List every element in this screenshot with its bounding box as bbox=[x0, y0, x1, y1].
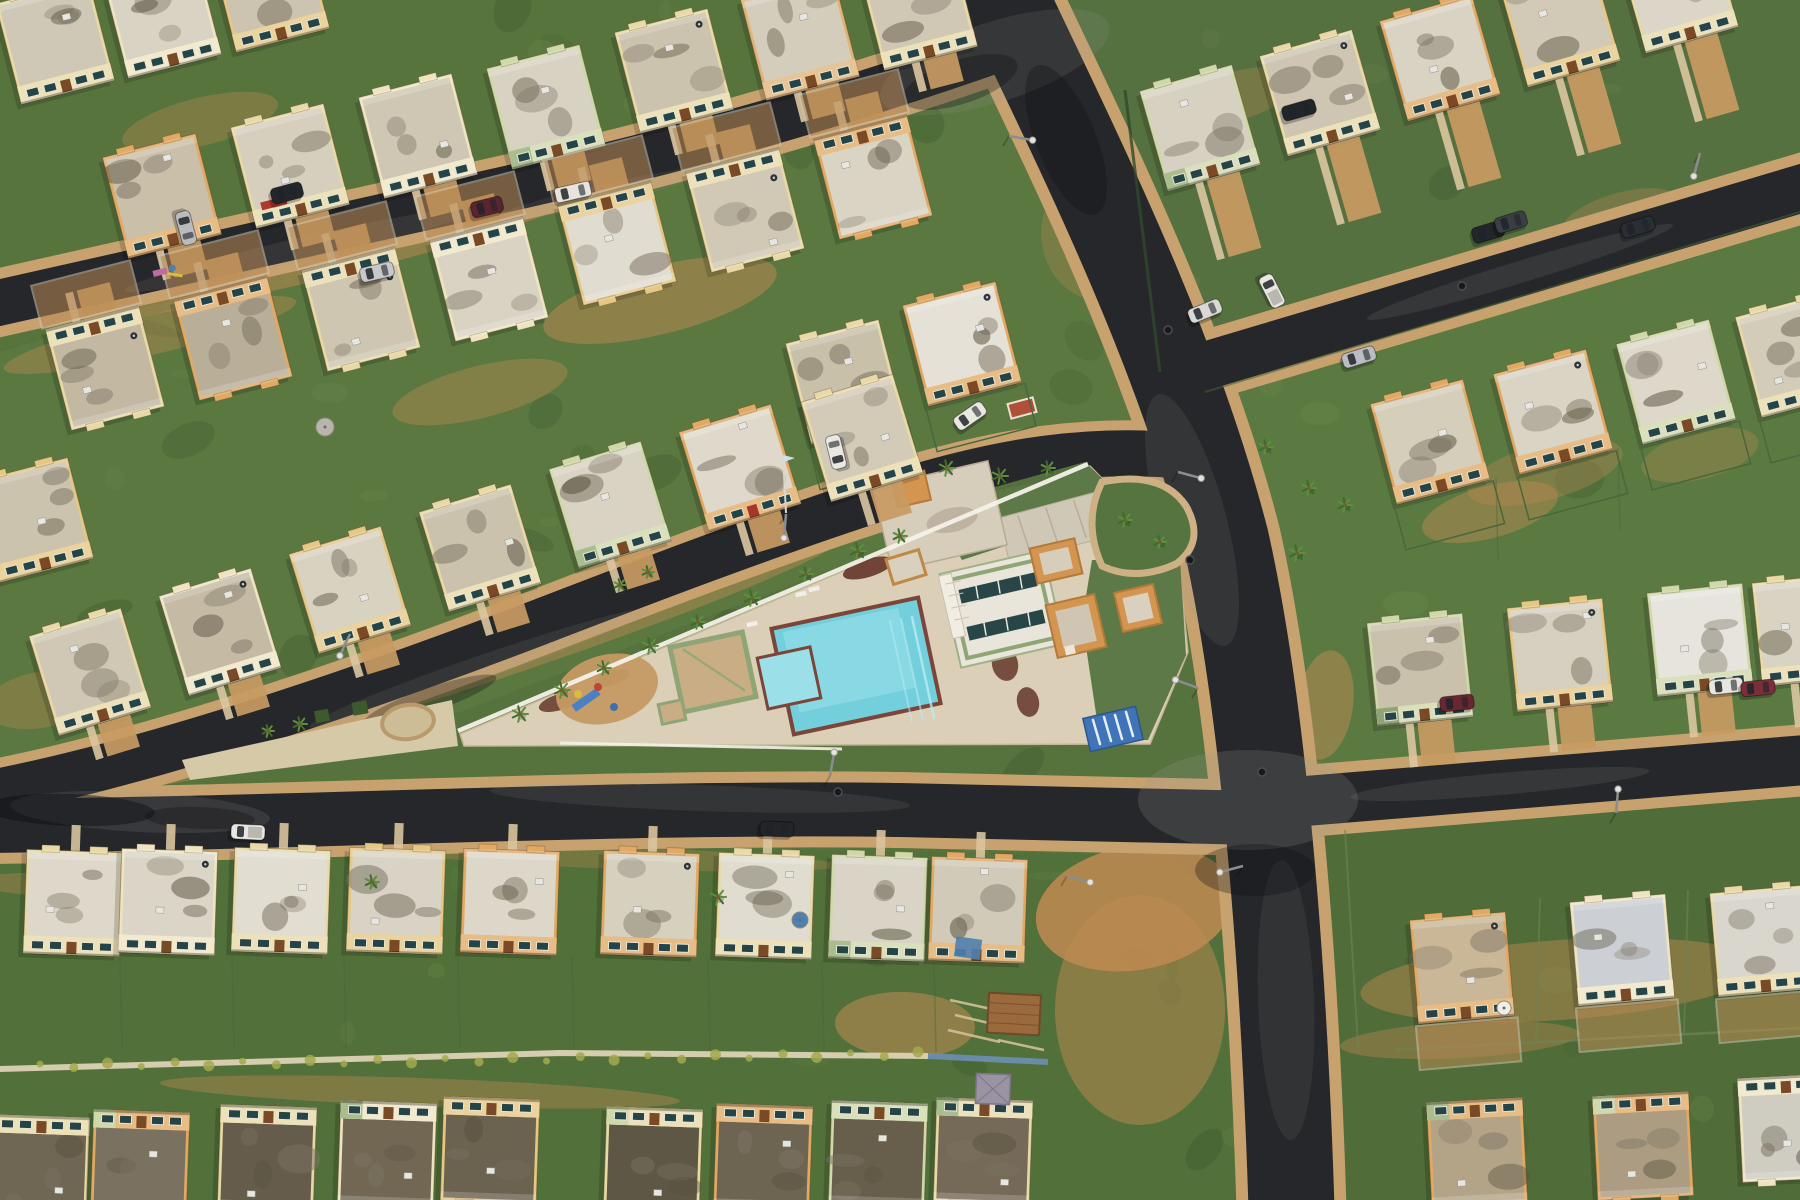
dirt-patch bbox=[1055, 895, 1225, 1125]
window bbox=[486, 940, 498, 948]
window bbox=[501, 1103, 513, 1111]
window bbox=[614, 1112, 626, 1120]
window bbox=[1453, 1106, 1465, 1115]
walkway bbox=[648, 826, 658, 852]
door bbox=[759, 1110, 769, 1122]
window bbox=[742, 1109, 754, 1117]
hedge-shrub bbox=[102, 1058, 113, 1069]
door bbox=[383, 1107, 393, 1119]
door bbox=[1636, 1099, 1647, 1112]
window bbox=[741, 944, 753, 952]
hedge-shrub bbox=[913, 1047, 924, 1058]
window bbox=[126, 940, 138, 948]
window bbox=[49, 941, 61, 949]
window bbox=[1524, 697, 1537, 706]
manhole bbox=[1186, 556, 1194, 564]
corner-peninsula bbox=[1092, 479, 1194, 574]
ac-unit bbox=[783, 1141, 791, 1147]
window bbox=[857, 1106, 869, 1114]
window bbox=[451, 1102, 463, 1110]
hedge-shrub bbox=[272, 1060, 281, 1069]
door bbox=[1620, 988, 1631, 1001]
manhole bbox=[1258, 768, 1266, 776]
construction-shed bbox=[987, 993, 1041, 1036]
door bbox=[389, 940, 399, 952]
house bbox=[598, 1106, 705, 1200]
window bbox=[404, 940, 416, 948]
window bbox=[468, 940, 480, 948]
hedge-shrub bbox=[239, 1058, 246, 1065]
ac-unit bbox=[1457, 1180, 1465, 1186]
window bbox=[1435, 1107, 1447, 1116]
hedge-shrub bbox=[442, 1055, 449, 1062]
window bbox=[51, 1121, 63, 1129]
door bbox=[649, 1113, 659, 1125]
gazebo bbox=[975, 1073, 1010, 1104]
window bbox=[1004, 950, 1016, 958]
hedge-shrub bbox=[475, 1058, 484, 1067]
house bbox=[928, 1097, 1033, 1200]
ac-unit bbox=[247, 1191, 255, 1197]
house bbox=[332, 1100, 437, 1200]
window bbox=[1746, 1083, 1758, 1092]
window bbox=[1443, 1008, 1456, 1017]
door bbox=[1559, 693, 1570, 706]
door bbox=[871, 947, 881, 959]
ac-unit bbox=[535, 878, 543, 884]
house bbox=[708, 1103, 813, 1200]
ac-unit bbox=[1426, 636, 1435, 643]
window bbox=[1796, 1080, 1800, 1089]
aerial-photo-stage bbox=[0, 0, 1800, 1200]
window bbox=[1601, 1101, 1613, 1110]
house bbox=[1404, 907, 1521, 1070]
window bbox=[1603, 990, 1616, 999]
aerial-photo-residential-development bbox=[0, 0, 1800, 1200]
detail bbox=[610, 703, 618, 711]
window bbox=[626, 942, 638, 950]
hedge-shrub bbox=[406, 1057, 417, 1068]
walkway bbox=[876, 830, 886, 856]
door bbox=[874, 1107, 884, 1119]
manhole bbox=[1164, 326, 1172, 334]
hedge-shrub bbox=[507, 1052, 518, 1063]
window bbox=[169, 1117, 181, 1125]
window bbox=[1651, 1098, 1663, 1107]
door bbox=[263, 1111, 273, 1123]
blue-tarp bbox=[954, 936, 983, 959]
plaza-planter bbox=[314, 709, 330, 723]
yard bbox=[1416, 1017, 1521, 1070]
hedge-shrub bbox=[576, 1052, 585, 1061]
window bbox=[1635, 987, 1648, 996]
window bbox=[907, 1108, 919, 1116]
yard bbox=[1576, 999, 1681, 1052]
hedge-shrub bbox=[543, 1058, 550, 1065]
window bbox=[664, 1113, 676, 1121]
window bbox=[1, 1120, 13, 1128]
window bbox=[676, 944, 688, 952]
window bbox=[1764, 1082, 1776, 1091]
window bbox=[194, 942, 206, 950]
door bbox=[758, 945, 768, 957]
window bbox=[1426, 1009, 1439, 1018]
hedge-shrub bbox=[138, 1063, 145, 1070]
walkway bbox=[394, 823, 404, 849]
pergola-small bbox=[658, 700, 686, 725]
ac-unit bbox=[156, 907, 164, 913]
ac-unit bbox=[654, 1190, 662, 1196]
roof bbox=[1596, 1110, 1690, 1198]
car-dark-sedan bbox=[757, 821, 795, 840]
detail bbox=[594, 683, 602, 691]
window bbox=[289, 940, 301, 948]
house bbox=[0, 1114, 90, 1200]
ac-unit bbox=[1628, 1171, 1636, 1177]
hedge-shrub bbox=[305, 1055, 316, 1066]
window bbox=[1682, 680, 1695, 689]
door bbox=[66, 942, 76, 954]
ac-unit bbox=[1594, 934, 1602, 941]
door bbox=[274, 940, 284, 952]
window bbox=[1664, 682, 1677, 691]
hedge-shrub bbox=[609, 1055, 620, 1066]
door bbox=[486, 1103, 496, 1115]
ac-unit bbox=[371, 918, 379, 924]
window bbox=[1619, 1100, 1631, 1109]
window bbox=[1384, 712, 1397, 721]
walkway bbox=[976, 832, 986, 858]
window bbox=[1402, 710, 1415, 719]
car-white-pickup bbox=[227, 823, 265, 843]
window bbox=[416, 1108, 428, 1116]
window bbox=[176, 941, 188, 949]
ac-unit bbox=[1680, 645, 1689, 652]
window bbox=[469, 1102, 481, 1110]
window bbox=[1775, 978, 1788, 987]
door bbox=[503, 941, 513, 953]
house bbox=[1704, 880, 1800, 1043]
window bbox=[836, 946, 848, 954]
window bbox=[31, 941, 43, 949]
plaza-planter bbox=[351, 700, 368, 715]
hedge-shrub bbox=[37, 1061, 44, 1068]
window bbox=[144, 940, 156, 948]
driveway bbox=[1557, 704, 1595, 751]
hedge-shrub bbox=[710, 1049, 721, 1060]
hedge-shrub bbox=[373, 1055, 382, 1064]
ac-unit bbox=[980, 868, 988, 874]
window bbox=[366, 1106, 378, 1114]
window bbox=[792, 1111, 804, 1119]
window bbox=[422, 941, 434, 949]
window bbox=[986, 949, 998, 957]
house bbox=[1564, 889, 1681, 1052]
door bbox=[136, 1116, 146, 1128]
house bbox=[1587, 1092, 1694, 1200]
window bbox=[278, 1111, 290, 1119]
window bbox=[1012, 1105, 1024, 1113]
window bbox=[69, 1122, 81, 1130]
window bbox=[1542, 695, 1555, 704]
window bbox=[119, 1115, 131, 1123]
window bbox=[536, 942, 548, 950]
window bbox=[774, 1110, 786, 1118]
window bbox=[257, 939, 269, 947]
window bbox=[1787, 670, 1800, 679]
house bbox=[1732, 1073, 1800, 1187]
ac-unit bbox=[878, 1135, 886, 1141]
window bbox=[1586, 991, 1599, 1000]
walkway bbox=[166, 824, 176, 850]
door bbox=[979, 1104, 989, 1116]
window bbox=[1485, 1104, 1497, 1113]
window bbox=[101, 1115, 113, 1123]
window bbox=[354, 939, 366, 947]
window bbox=[296, 1112, 308, 1120]
walkway bbox=[71, 825, 81, 851]
window bbox=[151, 1116, 163, 1124]
door bbox=[161, 941, 171, 953]
hedge-shrub bbox=[677, 1055, 686, 1064]
window bbox=[19, 1120, 31, 1128]
window bbox=[723, 944, 735, 952]
hedge-shrub bbox=[880, 1052, 889, 1061]
hedge-shrub bbox=[203, 1060, 214, 1071]
door bbox=[1470, 1105, 1481, 1118]
yard bbox=[1716, 990, 1800, 1043]
house bbox=[435, 1096, 540, 1200]
window bbox=[773, 945, 785, 953]
hedge-shrub bbox=[847, 1049, 854, 1056]
door bbox=[643, 943, 653, 955]
window bbox=[839, 1106, 851, 1114]
manhole bbox=[1458, 282, 1466, 290]
door bbox=[1419, 708, 1430, 721]
window bbox=[1743, 981, 1756, 990]
window bbox=[1793, 976, 1800, 985]
window bbox=[228, 1110, 240, 1118]
window bbox=[886, 947, 898, 955]
window bbox=[1574, 691, 1587, 700]
driveway bbox=[1417, 719, 1455, 766]
wading-pool bbox=[757, 647, 821, 709]
house bbox=[212, 1104, 322, 1200]
walkway bbox=[508, 824, 518, 850]
ac-unit bbox=[1781, 623, 1790, 630]
window bbox=[889, 1107, 901, 1115]
ac-unit bbox=[1783, 1140, 1791, 1146]
window bbox=[1503, 1103, 1515, 1112]
hedge-shrub bbox=[778, 1049, 787, 1058]
hedge-shrub bbox=[746, 1055, 753, 1062]
window bbox=[81, 942, 93, 950]
window bbox=[944, 1103, 956, 1111]
ac-unit bbox=[633, 907, 641, 913]
house bbox=[1421, 1097, 1531, 1200]
door bbox=[1460, 1006, 1471, 1019]
window bbox=[372, 939, 384, 947]
house bbox=[823, 1100, 928, 1200]
window bbox=[519, 1104, 531, 1112]
window bbox=[99, 943, 111, 951]
ac-unit bbox=[786, 871, 794, 877]
hedge-shrub bbox=[340, 1060, 347, 1067]
house bbox=[85, 1109, 190, 1200]
ac-unit bbox=[896, 906, 904, 912]
ac-unit bbox=[55, 1187, 63, 1193]
window bbox=[658, 943, 670, 951]
window bbox=[854, 946, 866, 954]
window bbox=[518, 941, 530, 949]
window bbox=[904, 948, 916, 956]
window bbox=[1592, 690, 1605, 699]
window bbox=[608, 942, 620, 950]
ac-unit bbox=[149, 1151, 157, 1157]
ac-unit bbox=[1000, 1179, 1008, 1185]
window bbox=[1475, 1005, 1488, 1014]
ac-unit bbox=[298, 884, 306, 890]
ac-unit bbox=[46, 906, 54, 912]
ac-unit bbox=[1766, 902, 1774, 909]
window bbox=[1669, 1097, 1681, 1106]
door bbox=[36, 1121, 46, 1133]
ac-unit bbox=[404, 1173, 412, 1179]
ac-unit bbox=[487, 1168, 495, 1174]
window bbox=[307, 941, 319, 949]
window bbox=[962, 1103, 974, 1111]
hedge-shrub bbox=[811, 1052, 822, 1063]
window bbox=[1726, 982, 1739, 991]
window bbox=[994, 1104, 1006, 1112]
window bbox=[398, 1107, 410, 1115]
window bbox=[1653, 985, 1666, 994]
manhole bbox=[834, 788, 842, 796]
window bbox=[682, 1114, 694, 1122]
ac-unit bbox=[1467, 977, 1475, 984]
door bbox=[1781, 1081, 1792, 1094]
window bbox=[348, 1106, 360, 1114]
window bbox=[239, 939, 251, 947]
walkway bbox=[279, 823, 289, 849]
window bbox=[791, 946, 803, 954]
door bbox=[1760, 979, 1771, 992]
detail bbox=[574, 690, 582, 698]
window bbox=[246, 1110, 258, 1118]
window bbox=[632, 1112, 644, 1120]
hedge-shrub bbox=[69, 1063, 78, 1072]
hedge-shrub bbox=[171, 1058, 180, 1067]
window bbox=[936, 948, 948, 956]
window bbox=[724, 1109, 736, 1117]
hedge-shrub bbox=[644, 1052, 651, 1059]
